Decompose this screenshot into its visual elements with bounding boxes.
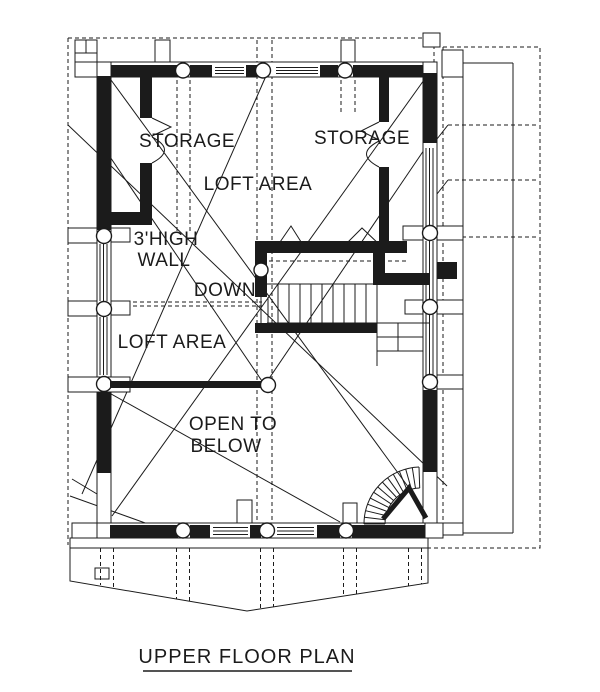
upper-floor-plan-drawing: STORAGE STORAGE LOFT AREA 3'HIGH WALL DO… (0, 0, 600, 692)
floor-plan-page: STORAGE STORAGE LOFT AREA 3'HIGH WALL DO… (0, 0, 600, 692)
log-wall-bottom (70, 500, 463, 548)
label-storage-right: STORAGE (314, 128, 410, 149)
stairs (254, 241, 430, 366)
stair-treads (278, 284, 366, 323)
label-loft-area-lower: LOFT AREA (118, 332, 227, 353)
log-wall-right (403, 62, 463, 523)
loft-rail (110, 378, 276, 393)
log-wall-top (75, 40, 437, 78)
label-open-to-below-1: OPEN TO (189, 414, 277, 435)
label-high-wall-2: WALL (137, 250, 190, 271)
label-loft-area-upper: LOFT AREA (204, 174, 313, 195)
plan-title: UPPER FLOOR PLAN (138, 646, 355, 668)
spiral-stairs (364, 467, 426, 524)
prow-outline (70, 548, 428, 611)
deck-outline (423, 33, 540, 548)
log-wall-left (68, 62, 130, 523)
storage-closet-right (361, 77, 389, 241)
label-high-wall-1: 3'HIGH (134, 229, 199, 250)
post-lines-below-wall (101, 548, 422, 609)
winder-steps (377, 284, 423, 366)
label-down: DOWN (194, 280, 256, 301)
title-block: UPPER FLOOR PLAN (138, 646, 355, 671)
label-open-to-below-2: BELOW (190, 436, 261, 457)
label-storage-left: STORAGE (139, 131, 235, 152)
